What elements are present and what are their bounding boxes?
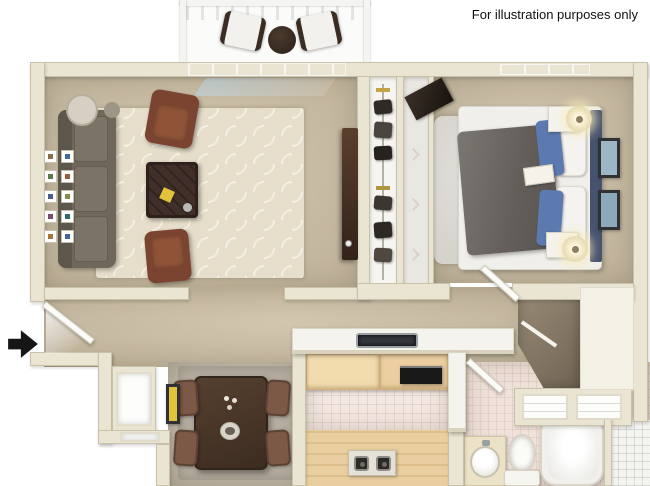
- closet-shelf-item: [376, 88, 390, 92]
- dining-chair: [173, 429, 199, 467]
- closet-shelf-item: [376, 186, 390, 190]
- coffee-table-decor: [159, 187, 175, 203]
- wall-frame: [61, 170, 74, 183]
- wall-left: [30, 62, 45, 302]
- wall-frame: [44, 150, 57, 163]
- bath-shelf-pane: [522, 394, 568, 420]
- balcony-railing-right: [364, 0, 370, 62]
- nightstand-lamp: [566, 106, 592, 132]
- sofa-back: [58, 110, 72, 268]
- side-plant: [104, 102, 120, 118]
- entry-arrow-icon: [6, 327, 40, 361]
- counter-return: [448, 352, 466, 432]
- art-canvas: [601, 193, 617, 227]
- wall-closet-west: [357, 76, 370, 288]
- disclaimer-text: For illustration purposes only: [472, 7, 638, 22]
- bath-white-tile: [610, 420, 650, 486]
- upper-cabinet-left: [306, 354, 380, 390]
- nightstand-lamp: [562, 236, 588, 262]
- hanging-clothes: [373, 121, 392, 138]
- coffee-table-item: [183, 203, 192, 212]
- bathtub: [540, 416, 604, 486]
- wall-frame: [61, 210, 74, 223]
- balcony-railing-top: [180, 0, 370, 6]
- bedroom-wall-art: [598, 190, 620, 230]
- stove: [348, 450, 396, 476]
- stove-burner: [354, 456, 369, 471]
- table-centerpiece: [224, 396, 229, 401]
- bedroom-window: [500, 64, 590, 75]
- wall-right: [633, 62, 648, 422]
- dining-chair: [265, 379, 291, 417]
- dining-chair: [265, 429, 291, 467]
- wall-dining-west-lower: [156, 444, 170, 486]
- wall-frame: [61, 150, 74, 163]
- wall-tub-east: [604, 416, 612, 486]
- tv-console: [342, 128, 358, 260]
- wall-frame: [61, 190, 74, 203]
- art-canvas: [601, 141, 617, 175]
- coffee-table: [146, 162, 198, 218]
- sofa-cushion: [74, 216, 108, 262]
- armchair-seat: [152, 103, 191, 142]
- glass-door-reflection: [194, 78, 336, 96]
- toilet-bowl: [508, 434, 536, 472]
- hanging-clothes: [374, 146, 393, 161]
- armchair-bottom: [144, 228, 192, 284]
- sofa: [58, 110, 116, 268]
- wall-frame: [44, 190, 57, 203]
- wall-frame: [44, 210, 57, 223]
- art-canvas: [169, 387, 177, 421]
- hanging-clothes: [373, 99, 392, 115]
- sofa-cushion: [74, 166, 108, 212]
- bath-faucet: [482, 440, 490, 446]
- dining-step-window: [120, 432, 160, 442]
- dining-table: [194, 376, 268, 470]
- table-plate: [220, 422, 240, 440]
- bath-shelf-pane: [576, 394, 622, 420]
- wall-kitchen-west: [292, 352, 306, 486]
- bathtub-basin: [548, 424, 598, 480]
- bath-sink: [470, 446, 500, 478]
- armchair-top: [144, 88, 201, 150]
- wall-closet-mid: [396, 76, 404, 288]
- toilet-tank: [504, 470, 540, 486]
- console-speaker: [345, 240, 352, 247]
- patio-table: [268, 26, 296, 54]
- hanging-clothes: [373, 195, 392, 211]
- range-hood: [400, 366, 442, 384]
- kitchen-sink: [356, 333, 418, 348]
- wall-bedroom-south-left: [357, 283, 450, 300]
- hanging-clothes: [374, 248, 393, 263]
- wall-living-south-left: [44, 287, 189, 300]
- floor-plan: For illustration purposes only: [0, 0, 650, 486]
- wall-frame: [61, 230, 74, 243]
- balcony-railing-left: [180, 0, 186, 62]
- bedroom-wall-art: [598, 138, 620, 178]
- wall-frame: [44, 170, 57, 183]
- bed-headboard: [590, 110, 602, 262]
- dining-window: [116, 372, 152, 426]
- sliding-glass-door: [188, 63, 346, 76]
- armchair-seat: [150, 235, 185, 270]
- living-area-rug: [96, 108, 304, 278]
- hall-east-wall-mass: [580, 287, 634, 390]
- wall-frame: [44, 230, 57, 243]
- stove-burner: [376, 456, 391, 471]
- hanging-clothes: [373, 221, 392, 238]
- dining-wall-art: [166, 384, 180, 424]
- round-side-table: [66, 94, 98, 126]
